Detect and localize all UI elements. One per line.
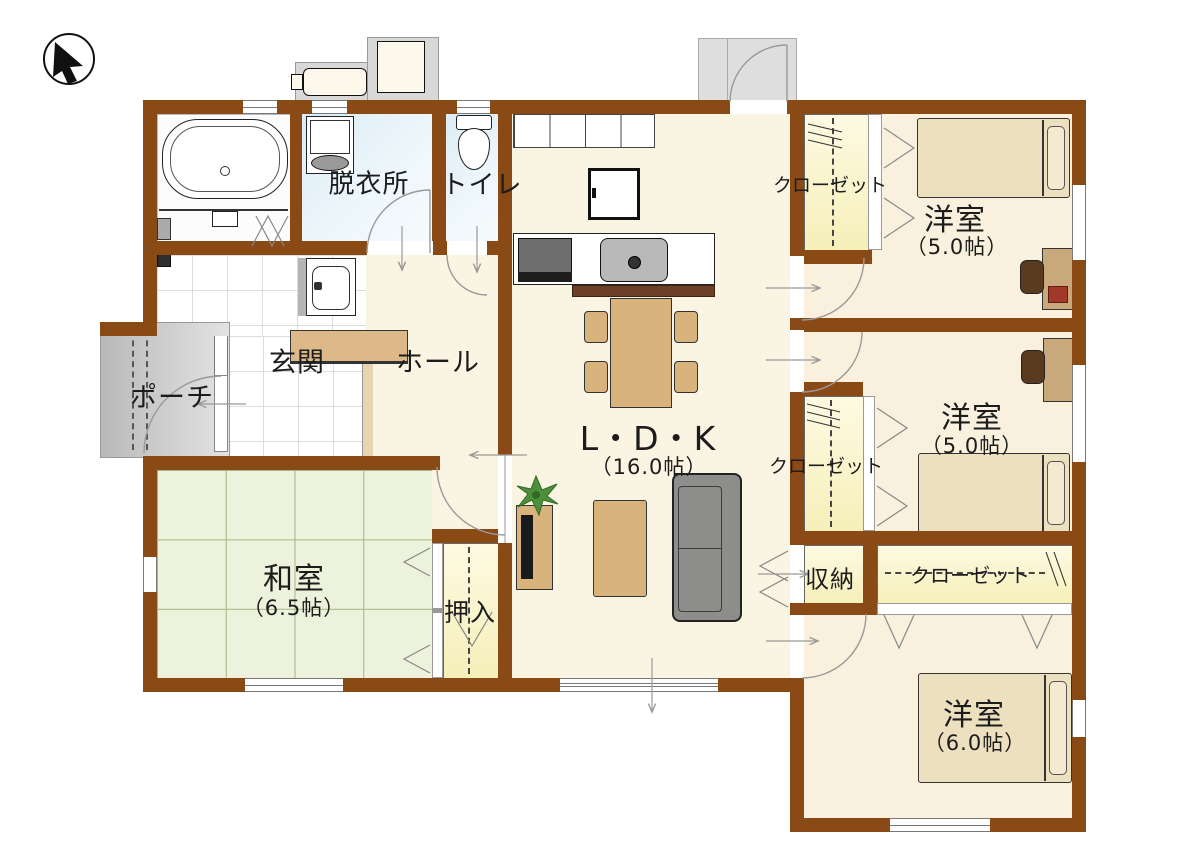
door-opening-bedroom-se[interactable] [790, 615, 804, 678]
window[interactable] [457, 100, 490, 114]
wall-segment [792, 250, 872, 264]
room-label-dressing: 脱衣所 [328, 164, 409, 201]
wall-segment [487, 241, 512, 255]
tank-cap [291, 74, 303, 90]
bed-pillow-line [1042, 455, 1044, 531]
heat-pump-unit [377, 41, 425, 93]
stove-panel [518, 272, 572, 282]
room-size-bedroom-e: （5.0帖） [921, 430, 1023, 460]
dining-chair [584, 361, 608, 393]
wall-segment [290, 114, 302, 255]
bathtub-drain [220, 166, 230, 176]
door-opening-washitsu[interactable] [440, 456, 498, 470]
window[interactable] [243, 100, 277, 114]
wall-segment [863, 545, 877, 603]
desk-chair [1020, 260, 1044, 294]
wall-segment [790, 678, 804, 832]
room-label-storage: 収納 [805, 560, 855, 595]
window[interactable] [890, 818, 990, 832]
door-opening-dressing[interactable] [367, 241, 433, 255]
pillow [1049, 681, 1067, 775]
window[interactable] [1072, 365, 1086, 462]
bed-pillow-line [1044, 675, 1046, 781]
tv [521, 515, 533, 579]
room-label-entrance: 玄関 [269, 341, 325, 380]
bed-pillow-line [1042, 120, 1044, 196]
wall-segment [290, 241, 367, 255]
window[interactable] [312, 100, 347, 114]
closet-label-se: クローゼット [910, 560, 1030, 589]
sofa-cushions [678, 486, 722, 612]
door-opening-storage[interactable] [790, 545, 804, 603]
bathtub-inner [170, 126, 280, 192]
room-label-toilet: トイレ [441, 165, 522, 202]
room-label-oshiire: 押入 [444, 593, 496, 629]
wall-segment [433, 241, 447, 255]
window[interactable] [1072, 185, 1086, 260]
counter-front-panel [572, 285, 715, 297]
bathroom-counter [212, 211, 238, 227]
coffee-table [593, 500, 647, 597]
dining-chair [674, 361, 698, 393]
oshiire-fusuma[interactable] [432, 543, 443, 678]
wall-segment [143, 100, 157, 336]
closet-label-e: クローゼット [769, 452, 883, 479]
desk-mat [1048, 286, 1068, 303]
sliding-door-hall-ldk[interactable] [498, 455, 512, 543]
wall-segment [143, 100, 1086, 114]
wall-segment [143, 241, 302, 255]
wall-segment [790, 603, 877, 615]
room-size-bedroom-ne: （5.0帖） [906, 231, 1008, 261]
room-label-hall: ホール [396, 341, 480, 380]
door-opening-toilet[interactable] [447, 241, 487, 255]
window-large[interactable] [560, 678, 718, 692]
back-door-landing [698, 38, 797, 104]
front-door-sidelight [214, 336, 228, 375]
pillow [1047, 126, 1065, 190]
door-opening-bedroom-e[interactable] [790, 330, 804, 392]
landing-divider [727, 38, 728, 102]
dining-chair [584, 311, 608, 343]
washbasin-faucet [314, 282, 322, 290]
dining-table [610, 298, 672, 408]
window[interactable] [1072, 700, 1086, 737]
water-heater-tank [303, 68, 367, 96]
refrigerator-handle [592, 188, 596, 198]
washing-machine-lid [310, 120, 350, 154]
window[interactable] [143, 557, 157, 592]
wall-segment [498, 543, 512, 692]
faucet [628, 256, 641, 269]
door-opening-bedroom-ne[interactable] [790, 256, 804, 318]
north-arrow-icon [44, 34, 94, 84]
floor-plan: 脱衣所 トイレ 玄関 ホール ポーチ L・D・K （16.0帖） 和室 （6.5… [0, 0, 1200, 868]
washbasin-side [298, 258, 307, 316]
closet-label-ne: クローゼット [773, 171, 887, 198]
wall-segment [790, 318, 1086, 332]
kitchen-upper-cabinets [513, 114, 655, 148]
room-size-ldk: （16.0帖） [591, 451, 708, 481]
window[interactable] [245, 678, 343, 692]
room-label-porch: ポーチ [130, 376, 214, 415]
back-door-opening[interactable] [730, 100, 787, 114]
closet-se-door[interactable] [877, 603, 1072, 615]
room-size-bedroom-se: （6.0帖） [924, 727, 1026, 757]
pillow [1047, 461, 1065, 525]
desk-chair [1021, 350, 1045, 384]
wall-segment [790, 531, 1086, 545]
wall-segment [100, 322, 157, 336]
dining-chair [674, 311, 698, 343]
shower-fixture [157, 218, 171, 240]
wall-segment [143, 456, 440, 470]
sofa-cushion-divider [678, 548, 722, 549]
room-size-washitsu: （6.5帖） [243, 592, 345, 622]
front-door-leaf[interactable] [214, 375, 228, 452]
